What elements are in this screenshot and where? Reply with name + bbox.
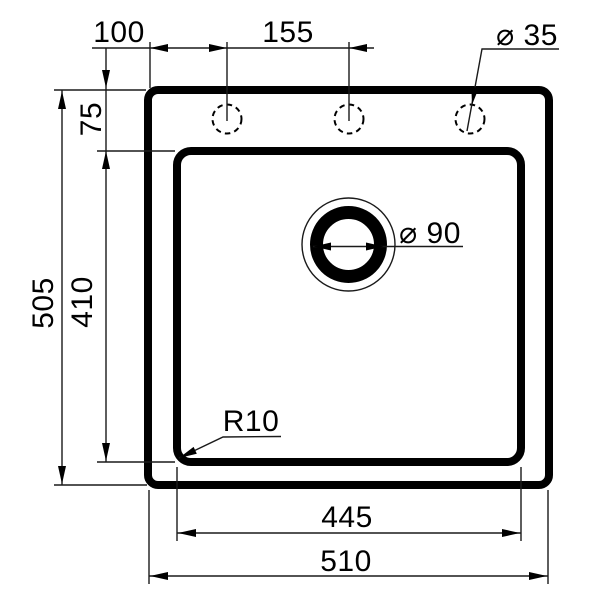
arrow-155-right	[349, 44, 367, 52]
leader-line-corner-radius	[179, 437, 281, 459]
label-faucet-offset: 100	[93, 16, 145, 49]
arrow-75-bottom	[102, 151, 110, 169]
arrow-faucet-diameter-leader	[471, 87, 479, 105]
label-faucet-hole-diameter: ⌀ 35	[496, 19, 558, 52]
arrow-510-right	[529, 572, 547, 580]
label-basin-depth: 410	[66, 276, 99, 328]
dimension-arrowheads	[58, 44, 547, 580]
arrow-410-bottom	[102, 443, 110, 461]
label-faucet-spacing: 155	[262, 16, 314, 49]
label-corner-radius: R10	[223, 405, 280, 438]
sink-drawing: 100 155 ⌀ 35 75 505 410 ⌀ 90 R10 445 510	[0, 0, 600, 600]
arrow-445-left	[178, 529, 196, 537]
faucet-hole-right	[456, 105, 485, 134]
arrow-505-bottom	[58, 466, 66, 484]
arrow-100-right	[209, 44, 227, 52]
arrow-505-top	[58, 91, 66, 109]
arrow-445-right	[502, 529, 520, 537]
arrow-75-top	[102, 70, 110, 88]
label-rim-to-basin: 75	[75, 102, 108, 136]
technical-drawing-canvas: 100 155 ⌀ 35 75 505 410 ⌀ 90 R10 445 510	[0, 0, 600, 600]
label-overall-width: 510	[320, 545, 372, 578]
arrow-100-left	[150, 44, 168, 52]
label-overall-depth: 505	[27, 277, 60, 329]
label-drain-diameter: ⌀ 90	[399, 217, 461, 250]
arrow-510-left	[150, 572, 168, 580]
drain	[302, 198, 395, 291]
label-basin-width: 445	[321, 501, 373, 534]
